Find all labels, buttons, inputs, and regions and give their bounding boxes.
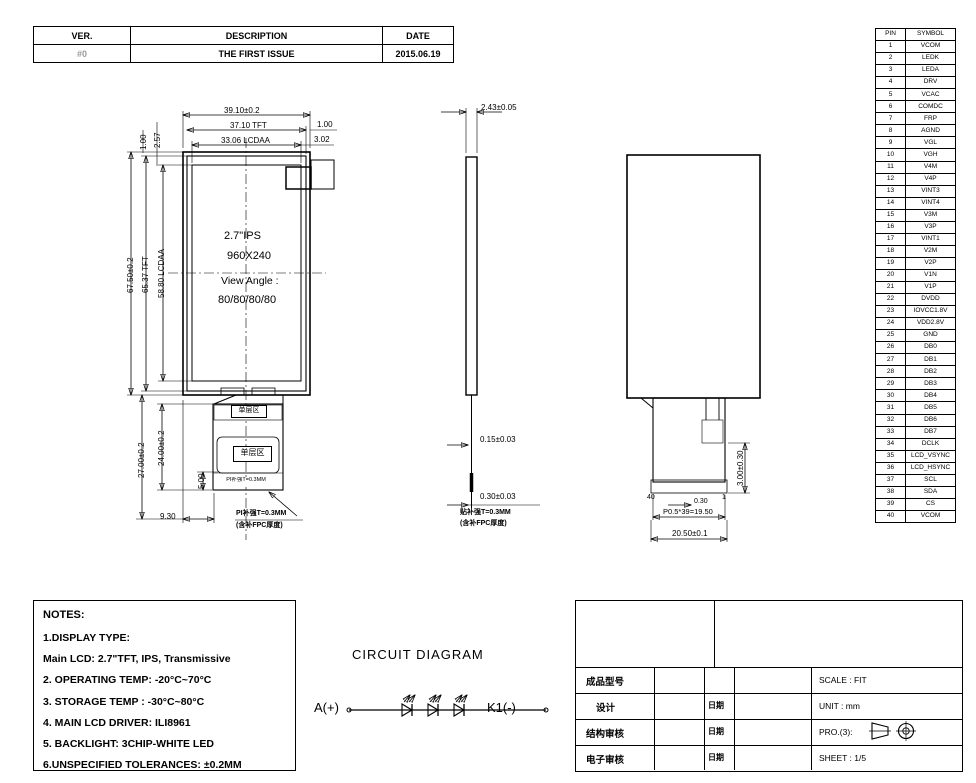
pin-symbol: VINT1	[906, 233, 956, 245]
single-layer-area-label2: 单层区	[233, 446, 272, 462]
revision-header-row: VER. DESCRIPTION DATE	[34, 27, 454, 45]
front-view	[127, 111, 337, 540]
fpc-callout-line2: (含补FPC厚度)	[236, 522, 283, 529]
revision-header-date: DATE	[383, 27, 454, 45]
date-label-electronic: 日期	[708, 752, 724, 763]
pin-symbol: VINT3	[906, 185, 956, 197]
note-line: Main LCD: 2.7"TFT, IPS, Transmissive	[43, 653, 295, 665]
note-line: 6.UNSPECIFIED TOLERANCES: ±0.2MM	[43, 759, 295, 771]
side-panel-outline	[466, 157, 477, 395]
pin-number: 38	[876, 486, 906, 498]
pin-row: 4DRV	[876, 77, 956, 89]
product-model-label: 成品型号	[586, 674, 624, 688]
pin-row: 28DB2	[876, 366, 956, 378]
dim-left-margin-label: 1.00	[140, 134, 148, 150]
dim-height-total-label: 67.50±0.2	[127, 257, 135, 293]
pin-row: 30DB4	[876, 390, 956, 402]
pin-row: 27DB1	[876, 354, 956, 366]
pin-row: 17VINT1	[876, 233, 956, 245]
dim-pitch-label: 0.30	[694, 498, 708, 505]
pin-symbol: VINT4	[906, 197, 956, 209]
note-line: 2. OPERATING TEMP: -20°C~70°C	[43, 674, 295, 686]
dim-fpc-total-label: 27.00±0.2	[138, 442, 146, 478]
pin-number: 18	[876, 245, 906, 257]
pin-row: 34DCLK	[876, 438, 956, 450]
pin-row: 40VCOM	[876, 510, 956, 522]
pin-row: 24VDD2.8V	[876, 318, 956, 330]
pin-number: 16	[876, 221, 906, 233]
pin-symbol: DVDD	[906, 294, 956, 306]
lcd-datasheet-page: VER. DESCRIPTION DATE #0 THE FIRST ISSUE…	[0, 0, 976, 783]
front-panel-outline	[183, 152, 310, 395]
dim-width-tft-label: 37.10 TFT	[230, 122, 267, 130]
connector-fingers	[651, 480, 727, 493]
dim-fpc-body-label: 24.00±0.2	[158, 430, 166, 466]
led-symbol	[402, 695, 415, 716]
pin-row: 18V2M	[876, 245, 956, 257]
pin-number: 10	[876, 149, 906, 161]
title-block: 成品型号 SCALE : FIT 设计 日期 UNIT : mm 结构审核 日期…	[575, 600, 963, 772]
pin-number: 20	[876, 269, 906, 281]
pin-number: 37	[876, 474, 906, 486]
pin-number: 31	[876, 402, 906, 414]
view-angle-value: 80/80/80/80	[218, 295, 276, 306]
pin-symbol: DB0	[906, 342, 956, 354]
pin-symbol: DB6	[906, 414, 956, 426]
pin-symbol: FRP	[906, 113, 956, 125]
pin-number: 9	[876, 137, 906, 149]
pin-symbol: V3M	[906, 209, 956, 221]
pin-symbol: VCOM	[906, 41, 956, 53]
pin-number: 13	[876, 185, 906, 197]
pin-symbol: IOVCC1.8V	[906, 306, 956, 318]
pin-number: 8	[876, 125, 906, 137]
note-line: 5. BACKLIGHT: 3CHIP-WHITE LED	[43, 738, 295, 750]
pin-symbol: V3P	[906, 221, 956, 233]
pin-number: 15	[876, 209, 906, 221]
pin-symbol: DB7	[906, 426, 956, 438]
pin-symbol: GND	[906, 330, 956, 342]
dim-width-lcdaa-label: 33.06 LCDAA	[221, 137, 270, 145]
circuit-diagram	[347, 695, 548, 716]
note-line: 4. MAIN LCD DRIVER: ILI8961	[43, 717, 295, 729]
pin-symbol: VCOM	[906, 510, 956, 522]
pin-first-label: 40	[647, 494, 655, 501]
back-fpc	[641, 398, 727, 493]
revision-row: #0 THE FIRST ISSUE 2015.06.19	[34, 45, 454, 63]
pin-number: 5	[876, 89, 906, 101]
cathode-label: K1(-)	[487, 701, 516, 714]
dim-height-lcdaa-label: 58.80 LCDAA	[158, 249, 166, 298]
pin-symbol: V4M	[906, 161, 956, 173]
pin-row: 6COMDC	[876, 101, 956, 113]
stiffener-strip-label: PI补强T=0.3MM	[222, 477, 270, 487]
sheet-value: SHEET : 1/5	[819, 753, 866, 763]
pin-symbol: LCD_HSYNC	[906, 462, 956, 474]
pin-symbol: DB1	[906, 354, 956, 366]
pin-row: 22DVDD	[876, 294, 956, 306]
revision-description: THE FIRST ISSUE	[131, 45, 383, 63]
pin-number: 1	[876, 41, 906, 53]
pin-row: 16V3P	[876, 221, 956, 233]
pin-row: 36LCD_HSYNC	[876, 462, 956, 474]
driver-ic-area	[311, 160, 334, 189]
dim-stiffener-thickness-label: 0.30±0.03	[480, 493, 516, 501]
led-symbol	[428, 695, 441, 716]
notes-box: NOTES: 1.DISPLAY TYPE:Main LCD: 2.7"TFT,…	[33, 600, 296, 771]
revision-header-description: DESCRIPTION	[131, 27, 383, 45]
projection-label: PRO.(3):	[819, 727, 853, 737]
pin-symbol: DRV	[906, 77, 956, 89]
pin-header-symbol: SYMBOL	[906, 29, 956, 41]
pin-symbol: LEDK	[906, 53, 956, 65]
pin-number: 32	[876, 414, 906, 426]
dim-right-margin2-label: 3.02	[314, 136, 330, 144]
pin-number: 3	[876, 65, 906, 77]
pin-symbol: SCL	[906, 474, 956, 486]
pin-number: 6	[876, 101, 906, 113]
pin-number: 33	[876, 426, 906, 438]
pin-row: 26DB0	[876, 342, 956, 354]
pin-row: 9VGL	[876, 137, 956, 149]
pin-number: 4	[876, 77, 906, 89]
pin-row: 32DB6	[876, 414, 956, 426]
pin-number: 14	[876, 197, 906, 209]
revision-table: VER. DESCRIPTION DATE #0 THE FIRST ISSUE…	[33, 26, 454, 63]
dim-pitch-total-label: P0.5*39=19.50	[663, 508, 713, 516]
date-label-design: 日期	[708, 700, 724, 711]
pin-number: 34	[876, 438, 906, 450]
electronic-review-label: 电子审核	[586, 752, 624, 766]
pin-number: 23	[876, 306, 906, 318]
dim-left-margin2-label: 2.57	[154, 132, 162, 148]
pin-number: 7	[876, 113, 906, 125]
pin-row: 3LEDA	[876, 65, 956, 77]
third-angle-projection-icon	[868, 720, 920, 742]
pin-symbol: DB5	[906, 402, 956, 414]
pin-symbol: VGL	[906, 137, 956, 149]
pin-symbol: LEDA	[906, 65, 956, 77]
pin-symbol: V2M	[906, 245, 956, 257]
design-label: 设计	[596, 700, 615, 714]
pin-symbol: DB3	[906, 378, 956, 390]
side-note-line1: 贴补强T=0.3MM	[460, 509, 511, 516]
back-panel-hatched	[627, 155, 760, 398]
pin-symbol: LCD_VSYNC	[906, 450, 956, 462]
pin-number: 24	[876, 318, 906, 330]
anode-label: A(+)	[314, 701, 339, 714]
dim-fpc-offset-label: 9.30	[160, 513, 176, 521]
date-label-structure: 日期	[708, 726, 724, 737]
circuit-diagram-title: CIRCUIT DIAGRAM	[352, 648, 484, 661]
pin-symbol: VDD2.8V	[906, 318, 956, 330]
pin-symbol: V4P	[906, 173, 956, 185]
pin-number: 30	[876, 390, 906, 402]
pin-number: 2	[876, 53, 906, 65]
pin-row: 11V4M	[876, 161, 956, 173]
pin-number: 28	[876, 366, 906, 378]
pin-symbol: V1N	[906, 269, 956, 281]
pin-header-row: PIN SYMBOL	[876, 29, 956, 41]
pin-row: 19V2P	[876, 257, 956, 269]
note-line: 3. STORAGE TEMP : -30°C~80°C	[43, 696, 295, 708]
pin-row: 12V4P	[876, 173, 956, 185]
pin-row: 38SDA	[876, 486, 956, 498]
dim-stiffener-height-label: 5.00	[198, 473, 206, 489]
notes-lines: 1.DISPLAY TYPE:Main LCD: 2.7"TFT, IPS, T…	[43, 632, 295, 771]
revision-date: 2015.06.19	[383, 45, 454, 63]
pin-row: 20V1N	[876, 269, 956, 281]
pin-row: 29DB3	[876, 378, 956, 390]
pin-number: 21	[876, 281, 906, 293]
dim-right-margin-label: 1.00	[317, 121, 333, 129]
pin-row: 39CS	[876, 498, 956, 510]
pin-number: 12	[876, 173, 906, 185]
pin-row: 5VCAC	[876, 89, 956, 101]
pin-header-number: PIN	[876, 29, 906, 41]
pin-row: 21V1P	[876, 281, 956, 293]
pin-number: 26	[876, 342, 906, 354]
pin-symbol: DCLK	[906, 438, 956, 450]
pin-row: 8AGND	[876, 125, 956, 137]
pin-symbol: DB2	[906, 366, 956, 378]
pin-row: 37SCL	[876, 474, 956, 486]
pin-symbol: VCAC	[906, 89, 956, 101]
structure-review-label: 结构审核	[586, 726, 624, 740]
side-view	[441, 108, 540, 508]
pin-number: 29	[876, 378, 906, 390]
pin-number: 17	[876, 233, 906, 245]
pin-last-label: 1	[722, 494, 726, 501]
panel-type-label: 2.7"IPS	[224, 231, 261, 242]
scale-value: SCALE : FIT	[819, 675, 867, 685]
pin-number: 39	[876, 498, 906, 510]
dim-height-tft-label: 65.37 TFT	[142, 256, 150, 293]
revision-ver: #0	[34, 45, 131, 63]
led-symbol	[454, 695, 467, 716]
notes-title: NOTES:	[43, 609, 295, 621]
pin-number: 27	[876, 354, 906, 366]
pin-row: 23IOVCC1.8V	[876, 306, 956, 318]
pin-symbol: VGH	[906, 149, 956, 161]
single-layer-area-label: 单层区	[231, 405, 267, 418]
pin-row: 1VCOM	[876, 41, 956, 53]
pin-symbol: V2P	[906, 257, 956, 269]
pin-row: 13VINT3	[876, 185, 956, 197]
pin-row: 10VGH	[876, 149, 956, 161]
pin-number: 22	[876, 294, 906, 306]
pin-row: 35LCD_VSYNC	[876, 450, 956, 462]
pin-symbol: V1P	[906, 281, 956, 293]
side-note-line2: (含补FPC厚度)	[460, 520, 507, 527]
dim-width-total-label: 39.10±0.2	[224, 107, 260, 115]
pin-number: 11	[876, 161, 906, 173]
pin-symbol: AGND	[906, 125, 956, 137]
pin-number: 40	[876, 510, 906, 522]
pin-number: 35	[876, 450, 906, 462]
pin-number: 25	[876, 330, 906, 342]
pin-row: 2LEDK	[876, 53, 956, 65]
pin-symbol: DB4	[906, 390, 956, 402]
pin-row: 25GND	[876, 330, 956, 342]
dim-fpc-thickness-label: 0.15±0.03	[480, 436, 516, 444]
pin-number: 36	[876, 462, 906, 474]
pin-row: 14VINT4	[876, 197, 956, 209]
resolution-label: 960X240	[227, 251, 271, 262]
dim-connector-height-label: 3.00±0.30	[737, 450, 745, 486]
pin-row: 15V3M	[876, 209, 956, 221]
note-line: 1.DISPLAY TYPE:	[43, 632, 295, 644]
revision-header-ver: VER.	[34, 27, 131, 45]
pin-symbol: CS	[906, 498, 956, 510]
pin-row: 33DB7	[876, 426, 956, 438]
pin-symbol: COMDC	[906, 101, 956, 113]
view-angle-label: View Angle :	[221, 276, 279, 287]
pin-table: PIN SYMBOL 1VCOM2LEDK3LEDA4DRV5VCAC6COMD…	[875, 28, 956, 523]
pin-number: 19	[876, 257, 906, 269]
pin-row: 7FRP	[876, 113, 956, 125]
pin-row: 31DB5	[876, 402, 956, 414]
unit-value: UNIT : mm	[819, 701, 860, 711]
pin-symbol: SDA	[906, 486, 956, 498]
dim-thickness-label: 2.43±0.05	[481, 104, 517, 112]
fpc-callout-line1: PI补强T=0.3MM	[236, 510, 286, 517]
side-dimension-lines	[441, 108, 540, 505]
dim-connector-width-label: 20.50±0.1	[672, 530, 708, 538]
